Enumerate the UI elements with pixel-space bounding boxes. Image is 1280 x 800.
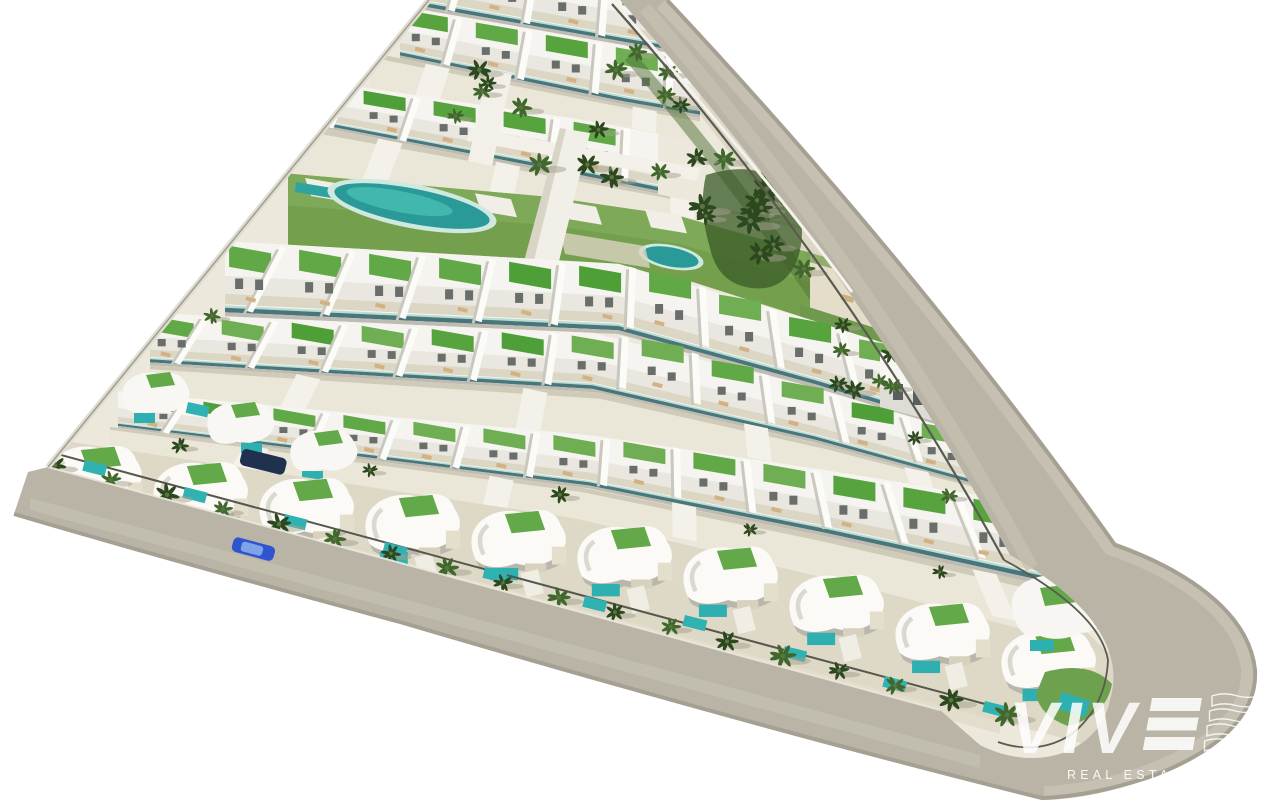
svg-text:VIV: VIV bbox=[1002, 687, 1148, 769]
svg-text:REAL ESTATE: REAL ESTATE bbox=[1067, 768, 1196, 782]
